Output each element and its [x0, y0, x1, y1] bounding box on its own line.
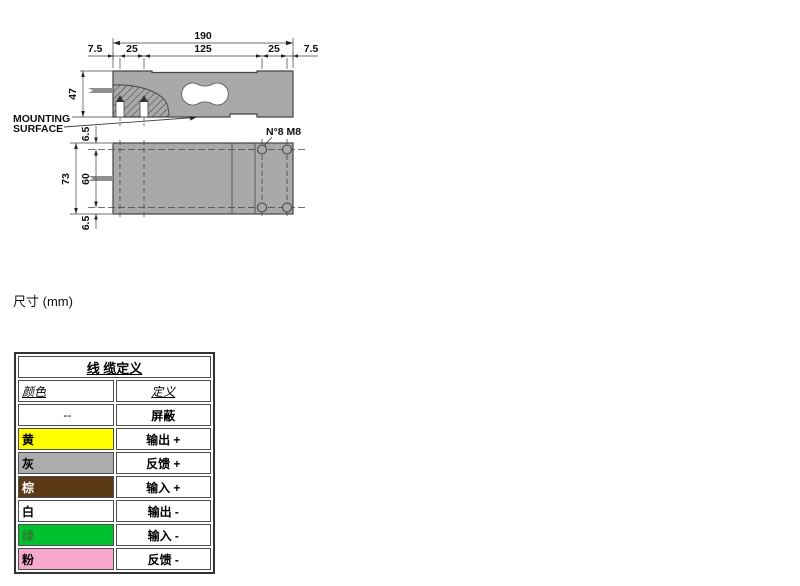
wire-definition-cell: 输出 + — [116, 428, 212, 450]
table-title-row: 线 缆定义 — [18, 356, 211, 378]
holes-note-label: N°8 M8 — [266, 126, 301, 138]
table-row: 灰 反馈 + — [18, 452, 211, 474]
wire-definition-cell: 输出 - — [116, 500, 212, 522]
wire-definition-cell: 输入 + — [116, 476, 212, 498]
wire-color-cell: 白 — [18, 500, 114, 522]
dim-plate-height: 73 — [60, 173, 72, 185]
dim-side-height: 47 — [67, 88, 79, 100]
wire-color-cell: 粉 — [18, 548, 114, 570]
cable-definition-table: 线 缆定义 颜色 定义 -- 屏蔽 黄 输出 + 灰 反馈 + 棕 输入 + 白… — [14, 352, 215, 574]
table-row: 白 输出 - — [18, 500, 211, 522]
wire-color-cell: 绿 — [18, 524, 114, 546]
dim-chain-3: 25 — [268, 43, 280, 55]
wire-color-cell: -- — [18, 404, 114, 426]
dim-chain-4: 7.5 — [304, 43, 319, 55]
page: 190 7.5 25 125 25 7.5 — [0, 0, 800, 586]
dim-holes-span: 60 — [80, 173, 92, 185]
table-title: 线 缆定义 — [18, 356, 211, 378]
units-caption: 尺寸 (mm) — [13, 291, 73, 310]
top-view — [88, 139, 308, 219]
drawing-svg: 190 7.5 25 125 25 7.5 — [0, 0, 340, 250]
column-header-color: 颜色 — [18, 380, 114, 402]
load-cell-technical-drawing: 190 7.5 25 125 25 7.5 — [0, 0, 340, 250]
cable-side-view — [88, 88, 113, 93]
wire-color-cell: 棕 — [18, 476, 114, 498]
dim-chain-2: 125 — [194, 43, 212, 55]
table-row: 棕 输入 + — [18, 476, 211, 498]
wire-definition-cell: 屏蔽 — [116, 404, 212, 426]
wire-definition-cell: 输入 - — [116, 524, 212, 546]
dim-chain-1: 25 — [126, 43, 138, 55]
dim-offset-bottom: 6.5 — [80, 216, 92, 231]
dim-offset-top: 6.5 — [80, 127, 92, 142]
dumbbell-hole — [182, 83, 229, 105]
table-row: 黄 输出 + — [18, 428, 211, 450]
top-view-body — [113, 143, 293, 214]
wire-color-cell: 黄 — [18, 428, 114, 450]
dim-total-width: 190 — [194, 30, 212, 42]
mounting-surface-label-line2: SURFACE — [13, 123, 63, 135]
wire-definition-cell: 反馈 - — [116, 548, 212, 570]
dim-chain-0: 7.5 — [88, 43, 103, 55]
column-header-definition: 定义 — [116, 380, 212, 402]
wire-definition-cell: 反馈 + — [116, 452, 212, 474]
table-row: -- 屏蔽 — [18, 404, 211, 426]
table-row: 粉 反馈 - — [18, 548, 211, 570]
table-row: 绿 输入 - — [18, 524, 211, 546]
wire-color-cell: 灰 — [18, 452, 114, 474]
table-header-row: 颜色 定义 — [18, 380, 211, 402]
